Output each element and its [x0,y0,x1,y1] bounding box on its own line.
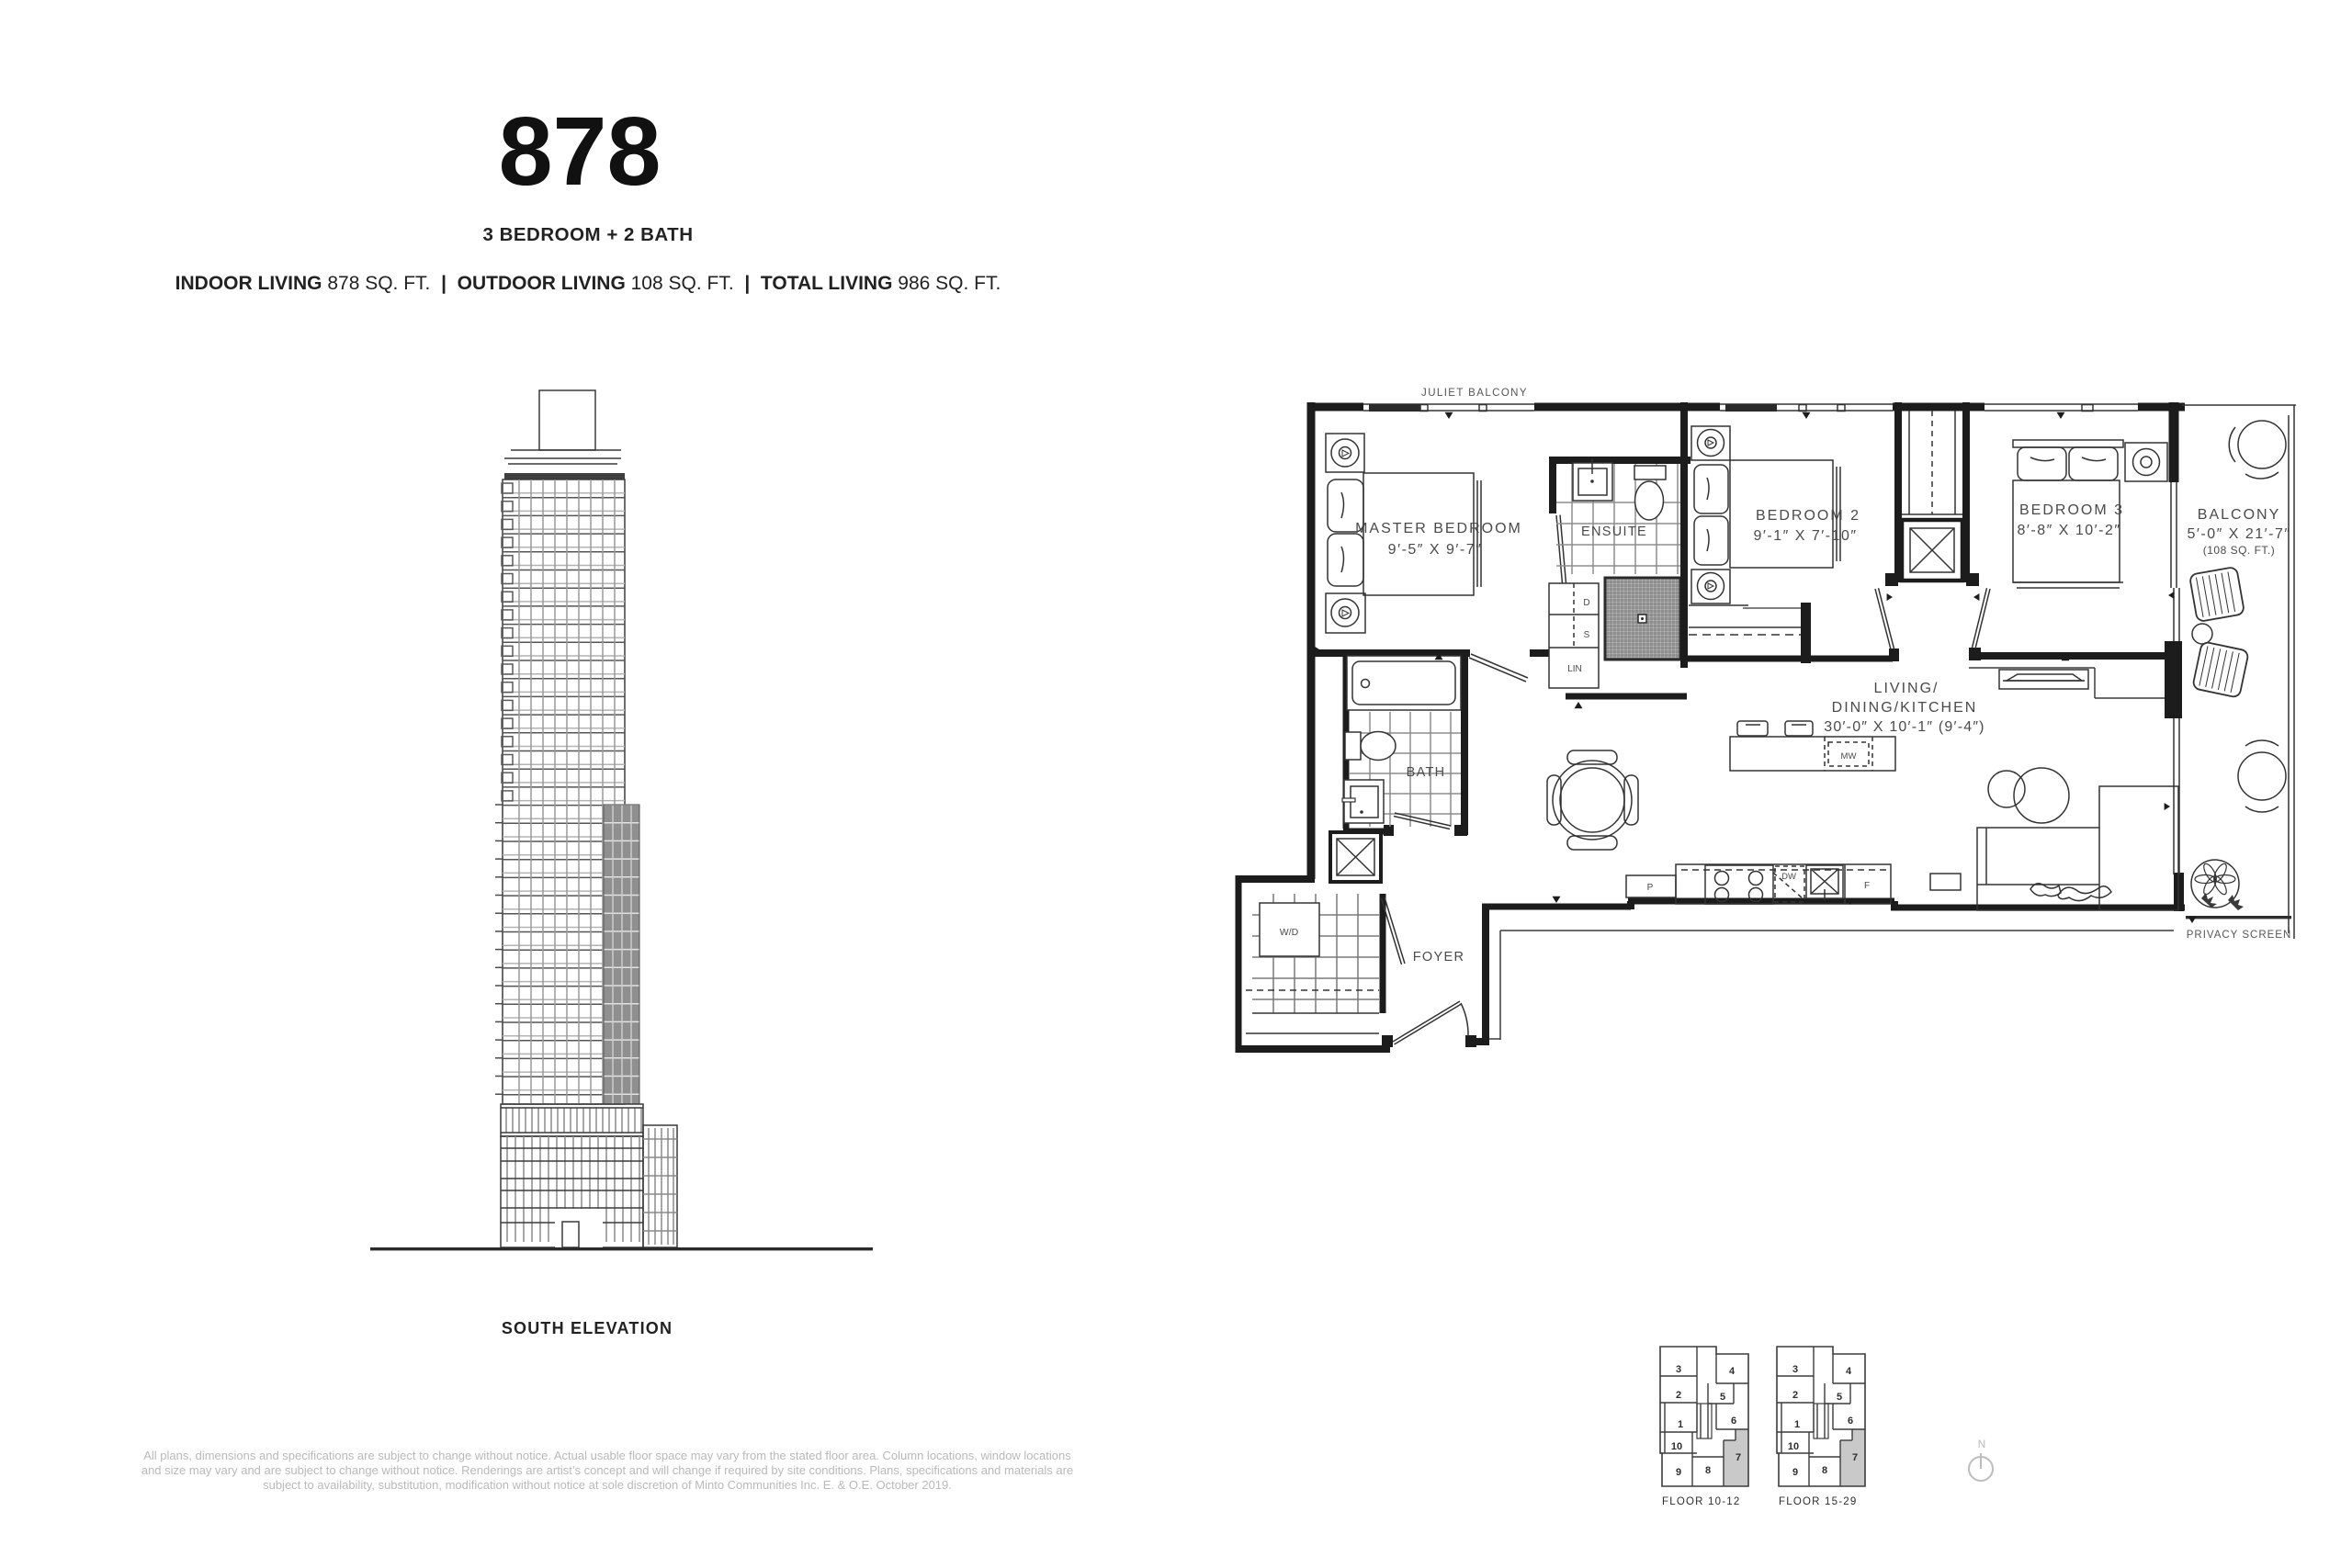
svg-text:N: N [1978,1438,1986,1450]
svg-text:8′-8″ X 10′-2″: 8′-8″ X 10′-2″ [2017,523,2120,538]
svg-text:subject to availability, subst: subject to availability, substitution, m… [263,1478,952,1492]
svg-text:All plans, dimensions and spec: All plans, dimensions and specifications… [143,1449,1071,1462]
svg-text:FLOOR 10-12: FLOOR 10-12 [1662,1496,1740,1507]
svg-text:5: 5 [1720,1392,1725,1403]
svg-text:S: S [1584,630,1590,640]
svg-text:6: 6 [1731,1416,1736,1427]
svg-text:BATH: BATH [1407,765,1446,780]
svg-text:2: 2 [1792,1390,1798,1401]
svg-text:9: 9 [1676,1467,1681,1478]
svg-text:P: P [1647,883,1654,893]
svg-text:FLOOR 15-29: FLOOR 15-29 [1779,1496,1857,1507]
svg-text:PRIVACY SCREEN: PRIVACY SCREEN [2187,930,2292,941]
svg-text:4: 4 [1846,1366,1852,1377]
svg-text:8: 8 [1705,1465,1711,1476]
svg-text:F: F [1864,881,1870,891]
svg-text:5′-0″ X 21′-7″: 5′-0″ X 21′-7″ [2187,526,2290,542]
svg-text:2: 2 [1676,1390,1681,1401]
svg-text:BEDROOM 3: BEDROOM 3 [2019,502,2124,518]
svg-text:MW: MW [1841,751,1857,761]
svg-text:ENSUITE: ENSUITE [1581,525,1647,539]
svg-text:BEDROOM 2: BEDROOM 2 [1756,508,1860,524]
svg-text:8: 8 [1822,1465,1827,1476]
svg-text:10: 10 [1671,1441,1682,1452]
svg-text:30′-0″ X 10′-1″ (9′-4″): 30′-0″ X 10′-1″ (9′-4″) [1824,719,1984,735]
svg-text:JULIET BALCONY: JULIET BALCONY [1421,388,1528,399]
svg-text:W/D: W/D [1280,927,1299,938]
svg-text:DW: DW [1781,872,1796,882]
svg-text:10: 10 [1788,1441,1799,1452]
svg-text:6: 6 [1848,1416,1853,1427]
svg-text:INDOOR LIVING 878 SQ. FT. |: INDOOR LIVING 878 SQ. FT. | OUTDOOR LIVI… [175,273,1001,294]
svg-text:3 BEDROOM + 2 BATH: 3 BEDROOM + 2 BATH [482,224,693,245]
svg-text:SOUTH ELEVATION: SOUTH ELEVATION [502,1319,673,1337]
svg-text:7: 7 [1852,1452,1858,1463]
svg-text:MASTER BEDROOM: MASTER BEDROOM [1355,521,1522,536]
svg-text:and size may vary and are subj: and size may vary and are subject to cha… [141,1463,1073,1477]
svg-text:9′-1″ X 7′-10″: 9′-1″ X 7′-10″ [1753,528,1857,544]
svg-text:7: 7 [1736,1452,1741,1463]
svg-text:DINING/KITCHEN: DINING/KITCHEN [1832,700,1978,716]
svg-text:878: 878 [499,97,661,206]
svg-text:LIVING/: LIVING/ [1874,681,1939,696]
svg-text:FOYER: FOYER [1413,950,1464,964]
svg-text:3: 3 [1792,1364,1798,1375]
svg-text:4: 4 [1729,1366,1736,1377]
svg-text:5: 5 [1837,1392,1842,1403]
svg-text:3: 3 [1676,1364,1681,1375]
svg-text:1: 1 [1678,1419,1683,1430]
svg-text:D: D [1583,598,1589,608]
svg-text:9: 9 [1792,1467,1798,1478]
svg-text:(108 SQ. FT.): (108 SQ. FT.) [2203,544,2276,557]
svg-text:1: 1 [1794,1419,1800,1430]
svg-text:9′-5″ X 9′-7″: 9′-5″ X 9′-7″ [1388,542,1483,558]
svg-text:LIN: LIN [1567,664,1582,674]
svg-text:BALCONY: BALCONY [2198,507,2280,523]
